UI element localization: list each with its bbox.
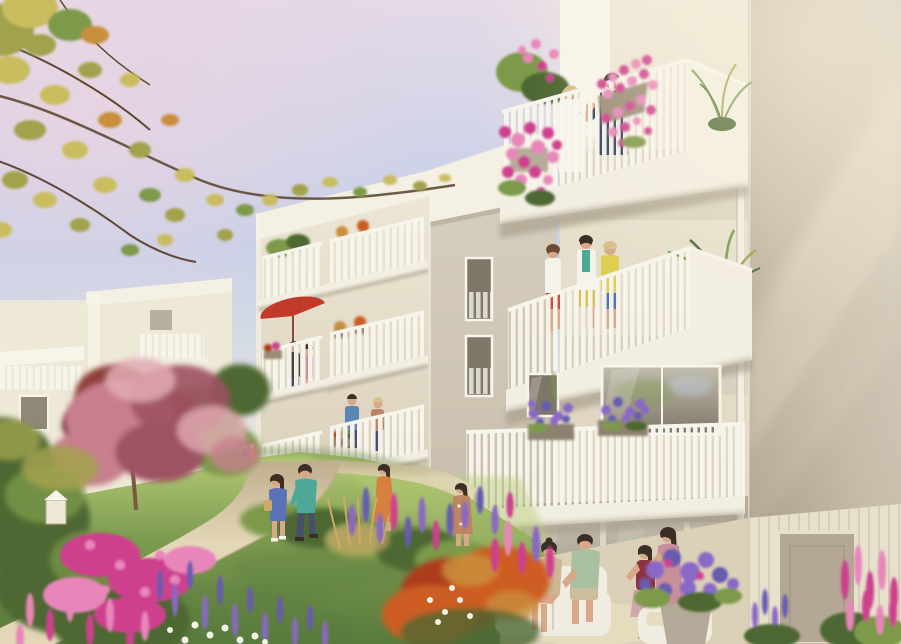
handbag <box>264 500 272 511</box>
railing-flower-box-red <box>264 342 282 359</box>
architectural-rendering <box>0 0 901 644</box>
scene-canvas <box>0 0 901 644</box>
